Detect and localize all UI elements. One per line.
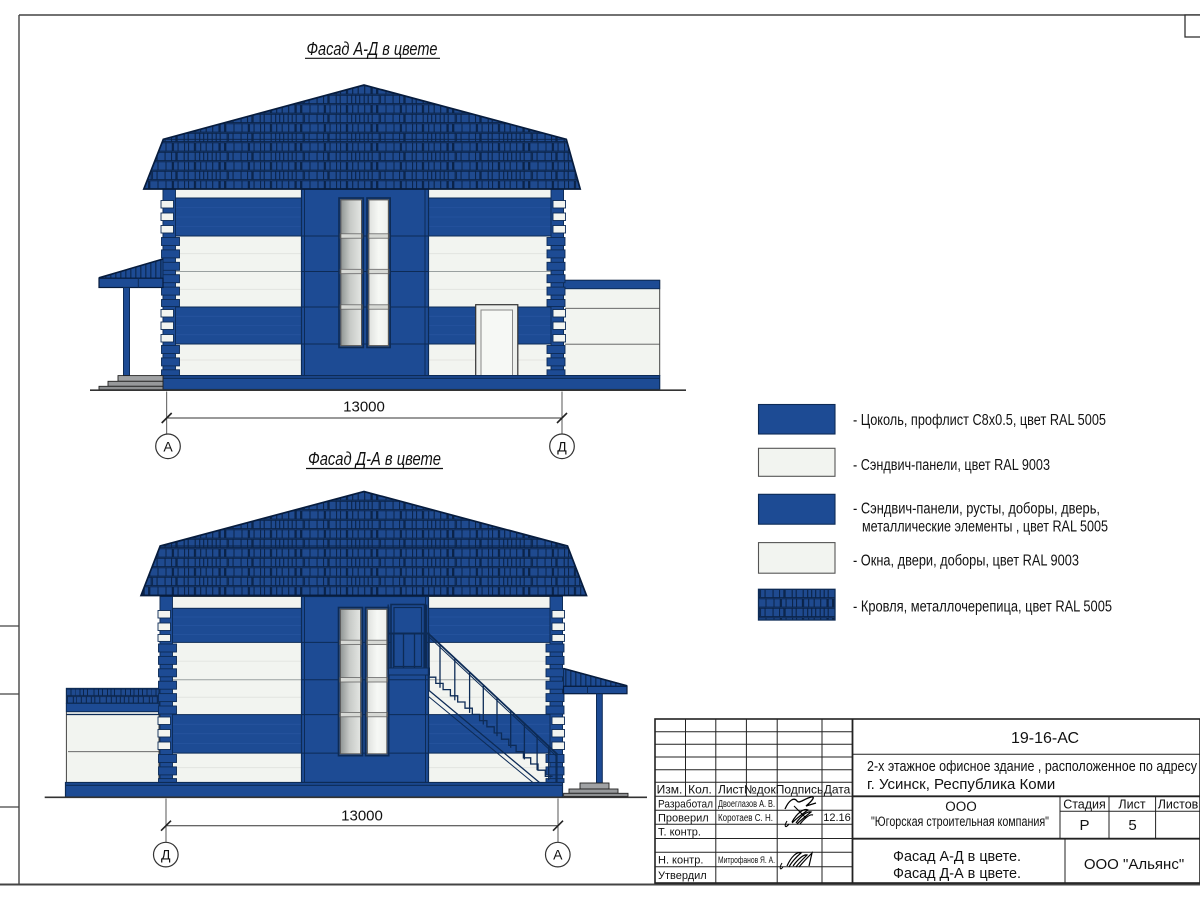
svg-text:Митрофанов Я. А.: Митрофанов Я. А.	[718, 855, 775, 866]
svg-text:Листов: Листов	[1158, 798, 1199, 812]
svg-text:Подпись: Подпись	[776, 782, 824, 796]
svg-text:Фасад А-Д в цвете: Фасад А-Д в цвете	[307, 39, 438, 59]
svg-text:Р: Р	[1079, 817, 1089, 834]
svg-text:Стадия: Стадия	[1063, 798, 1106, 812]
svg-text:Разработал: Разработал	[658, 798, 713, 810]
svg-text:Проверил: Проверил	[658, 812, 709, 824]
svg-text:- Окна, двери, доборы, цвет RA: - Окна, двери, доборы, цвет RAL 9003	[853, 553, 1079, 570]
svg-text:ООО: ООО	[945, 799, 977, 814]
svg-text:- Сэндвич-панели, цвет RAL 900: - Сэндвич-панели, цвет RAL 9003	[853, 457, 1050, 474]
svg-text:Лист: Лист	[1118, 798, 1145, 812]
svg-text:Фасад Д-А в цвете.: Фасад Д-А в цвете.	[893, 865, 1021, 882]
svg-text:- Цоколь, профлист С8х0.5, цве: - Цоколь, профлист С8х0.5, цвет RAL 5005	[853, 412, 1106, 429]
svg-text:12.16: 12.16	[823, 812, 851, 824]
svg-text:Лист: Лист	[718, 782, 745, 796]
svg-text:Д: Д	[557, 438, 567, 454]
svg-text:Утвердил: Утвердил	[658, 870, 707, 882]
svg-text:Фасад Д-А в цвете: Фасад Д-А в цвете	[308, 449, 441, 469]
svg-text:Изм.: Изм.	[657, 782, 683, 796]
svg-text:"Югорская строительная компани: "Югорская строительная компания"	[871, 814, 1049, 829]
svg-text:Д: Д	[161, 847, 171, 863]
svg-text:- Сэндвич-панели, русты, добор: - Сэндвич-панели, русты, доборы, дверь,	[853, 501, 1100, 518]
svg-text:Фасад А-Д в цвете.: Фасад А-Д в цвете.	[893, 848, 1021, 865]
svg-text:13000: 13000	[343, 399, 385, 416]
svg-text:А: А	[163, 438, 173, 454]
svg-text:2-х этажное офисное здание , р: 2-х этажное офисное здание , расположенн…	[867, 758, 1197, 775]
svg-text:ООО "Альянс": ООО "Альянс"	[1084, 856, 1184, 873]
svg-text:А: А	[553, 847, 563, 863]
svg-text:Дата: Дата	[824, 782, 851, 796]
svg-text:5: 5	[1128, 817, 1136, 834]
svg-text:Двоеглазов А. В.: Двоеглазов А. В.	[718, 799, 775, 810]
svg-text:Кол.: Кол.	[688, 782, 712, 796]
svg-text:13000: 13000	[341, 808, 383, 825]
svg-text:№док.: №док.	[744, 782, 779, 796]
svg-text:Н. контр.: Н. контр.	[658, 855, 703, 867]
svg-text:Коротаев С. Н.: Коротаев С. Н.	[718, 813, 773, 824]
svg-text:- Кровля, металлочерепица, цве: - Кровля, металлочерепица, цвет RAL 5005	[853, 599, 1112, 616]
svg-text:Т. контр.: Т. контр.	[658, 826, 701, 838]
svg-text:19-16-АС: 19-16-АС	[1011, 730, 1079, 747]
svg-text:металлические элементы , цвет: металлические элементы , цвет RAL 5005	[862, 519, 1108, 536]
svg-text:г. Усинск, Республика Коми: г. Усинск, Республика Коми	[867, 776, 1055, 793]
